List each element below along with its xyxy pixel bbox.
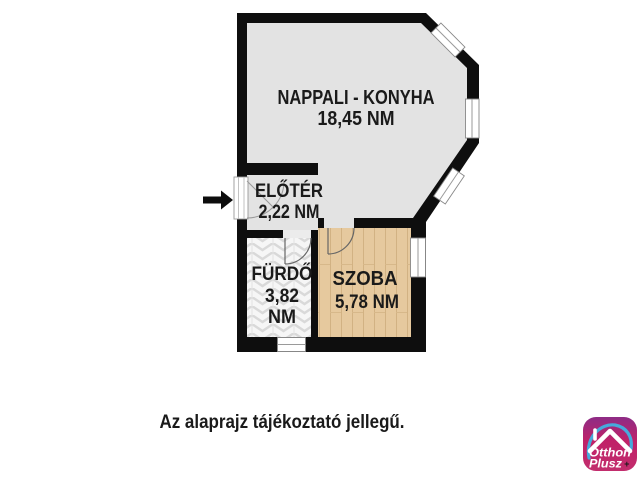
window-szoba-right bbox=[411, 238, 426, 277]
room-label-nappali: NAPPALI - KONYHA bbox=[278, 87, 435, 109]
threshold-szoba-door bbox=[324, 218, 354, 228]
wall-eloter-furdo bbox=[237, 230, 283, 238]
logo-text-line2: Plusz bbox=[589, 459, 622, 471]
floor-plan: NAPPALI - KONYHA 18,45 NM ELŐTÉR 2,22 NM… bbox=[203, 13, 479, 352]
threshold-furdo-door bbox=[283, 230, 311, 238]
room-area-szoba: 5,78 NM bbox=[335, 292, 399, 313]
room-label-furdo: FÜRDŐ bbox=[252, 263, 313, 285]
room-label-eloter: ELŐTÉR bbox=[255, 180, 323, 202]
entrance-arrow-icon bbox=[203, 191, 233, 210]
wall-nappali-eloter bbox=[237, 163, 318, 175]
wall-nappali-szoba-right bbox=[354, 218, 426, 228]
logo-plus-sign: + bbox=[624, 459, 630, 469]
entrance-door bbox=[234, 177, 248, 219]
room-area-furdo-unit: NM bbox=[268, 307, 296, 328]
window-bottom-wall bbox=[278, 338, 306, 352]
room-label-szoba: SZOBA bbox=[333, 268, 398, 290]
room-area-eloter: 2,22 NM bbox=[259, 202, 320, 223]
floorplan-page: NAPPALI - KONYHA 18,45 NM ELŐTÉR 2,22 NM… bbox=[0, 0, 640, 480]
room-area-furdo-value: 3,82 bbox=[265, 286, 299, 307]
floor-plan-svg: NAPPALI - KONYHA 18,45 NM ELŐTÉR 2,22 NM… bbox=[0, 0, 640, 480]
otthon-plusz-logo: Otthon Plusz + bbox=[583, 417, 637, 471]
window-right-wall bbox=[466, 99, 480, 138]
disclaimer-text: Az alaprajz tájékoztató jellegű. bbox=[160, 411, 405, 433]
room-area-nappali: 18,45 NM bbox=[318, 108, 395, 130]
